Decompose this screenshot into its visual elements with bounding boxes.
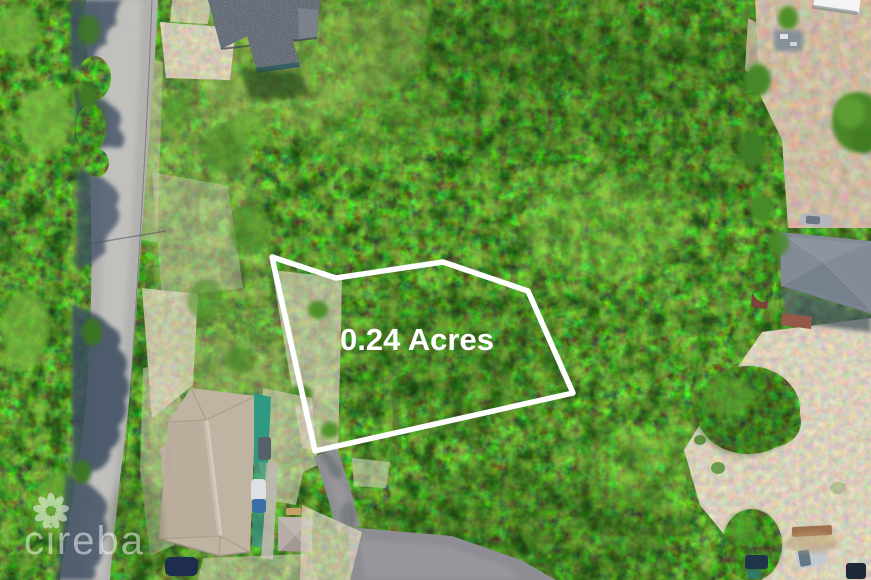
svg-text:cireba: cireba <box>24 519 145 563</box>
svg-text:0.24 Acres: 0.24 Acres <box>340 322 494 357</box>
